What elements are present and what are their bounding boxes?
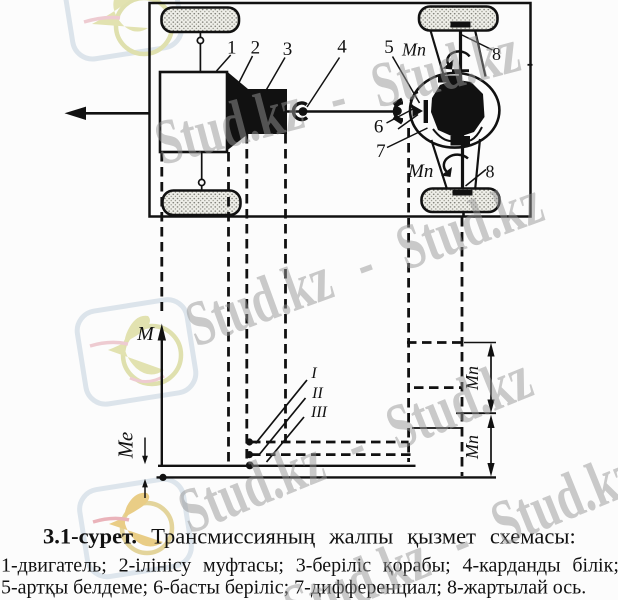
svg-text:7: 7 [376, 141, 386, 162]
svg-text:1: 1 [227, 38, 237, 59]
svg-text:4: 4 [337, 37, 347, 58]
svg-text:Ме: Ме [114, 432, 138, 460]
svg-text:II: II [311, 385, 323, 402]
svg-text:I: I [310, 365, 317, 382]
svg-text:М: М [136, 323, 155, 345]
svg-text:3: 3 [283, 39, 293, 60]
svg-text:Мп: Мп [407, 161, 433, 182]
svg-text:2: 2 [251, 38, 261, 59]
